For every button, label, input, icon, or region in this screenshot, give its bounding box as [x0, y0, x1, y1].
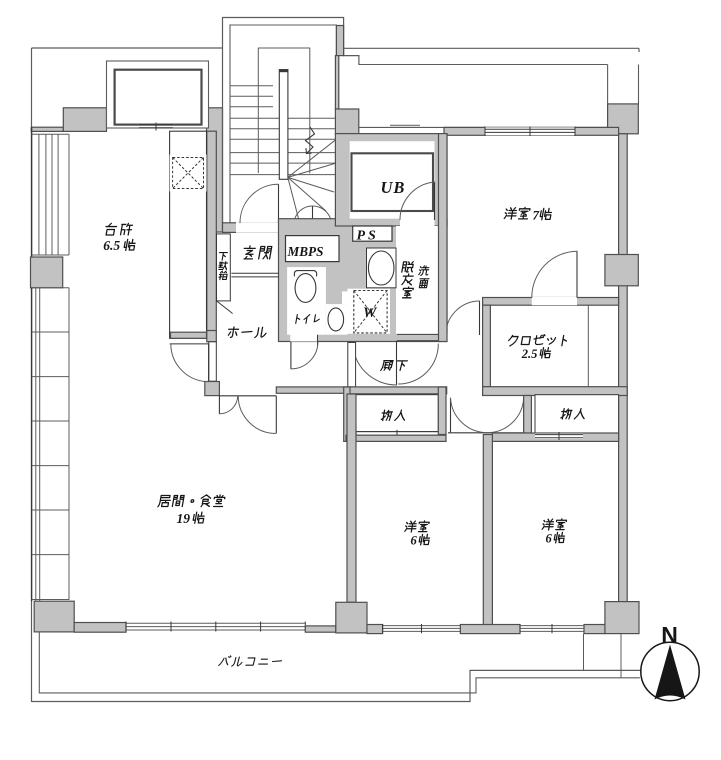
- svg-text:P S: P S: [357, 229, 377, 244]
- svg-text:6: 6: [411, 534, 418, 548]
- svg-text:2.5: 2.5: [521, 347, 538, 361]
- svg-text:W: W: [363, 305, 378, 321]
- svg-text:6: 6: [546, 532, 553, 546]
- svg-text:6.5: 6.5: [103, 238, 120, 253]
- svg-text:7: 7: [533, 208, 540, 223]
- svg-text:N: N: [661, 622, 678, 648]
- svg-text:19: 19: [177, 511, 191, 526]
- svg-text:UB: UB: [381, 178, 406, 197]
- svg-text:MBPS: MBPS: [287, 244, 324, 259]
